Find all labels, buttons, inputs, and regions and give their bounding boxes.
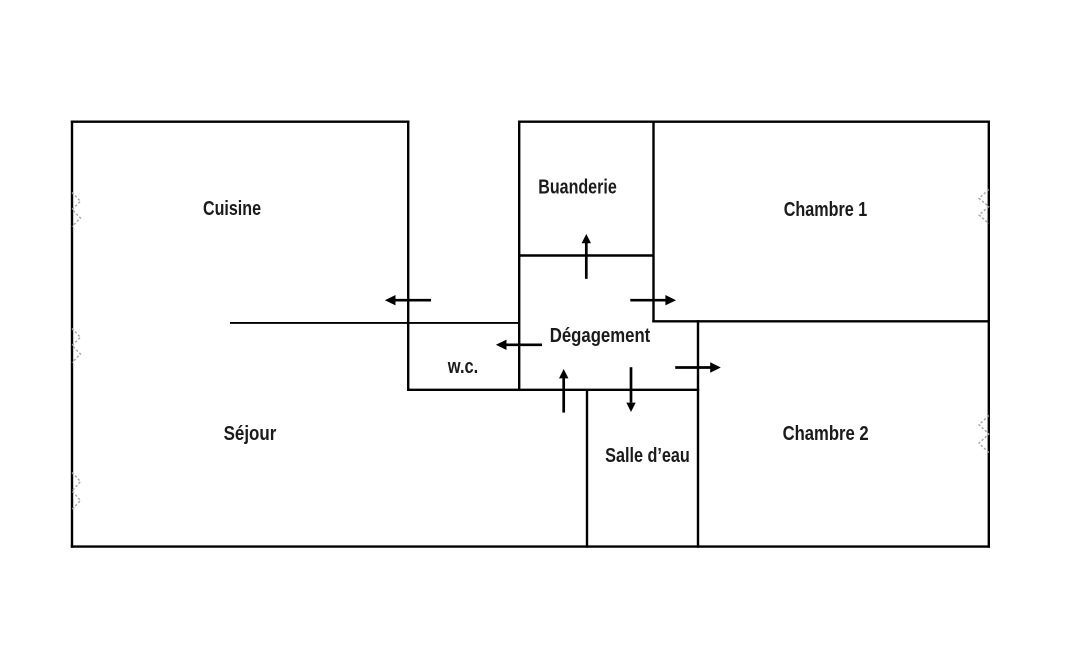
svg-text:Buanderie: Buanderie	[538, 176, 617, 199]
svg-text:Chambre 2: Chambre 2	[783, 422, 869, 445]
svg-text:Cuisine: Cuisine	[203, 197, 261, 220]
svg-text:Séjour: Séjour	[224, 422, 277, 445]
svg-text:Salle d’eau: Salle d’eau	[605, 444, 690, 467]
svg-text:Chambre 1: Chambre 1	[784, 198, 868, 221]
svg-text:w.c.: w.c.	[447, 355, 478, 378]
svg-text:Dégagement: Dégagement	[550, 324, 651, 347]
